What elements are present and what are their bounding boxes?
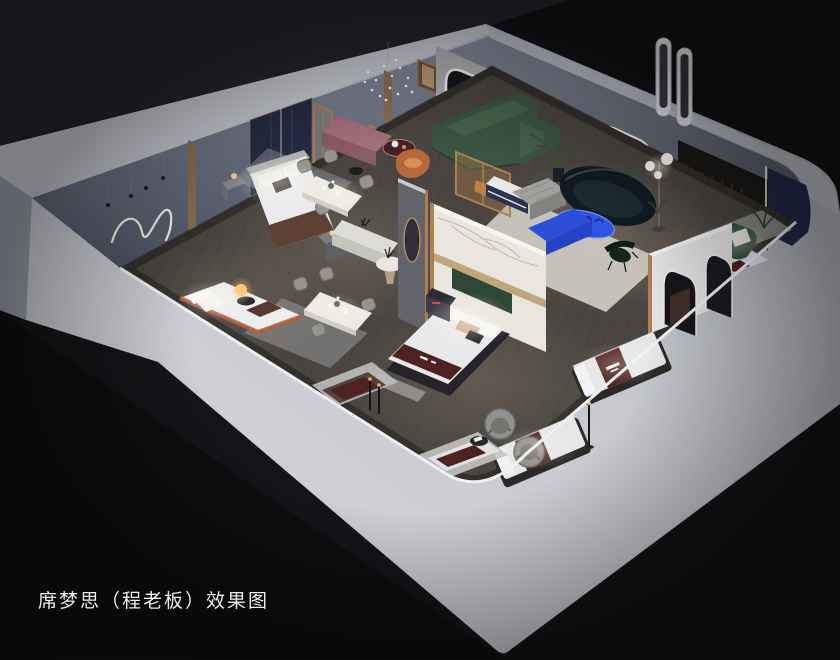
rendering-canvas: 席梦思（程老板）效果图 bbox=[0, 0, 840, 660]
image-caption: 席梦思（程老板）效果图 bbox=[38, 586, 269, 613]
vignette bbox=[0, 0, 840, 660]
interior-3d-rendering bbox=[0, 0, 840, 660]
